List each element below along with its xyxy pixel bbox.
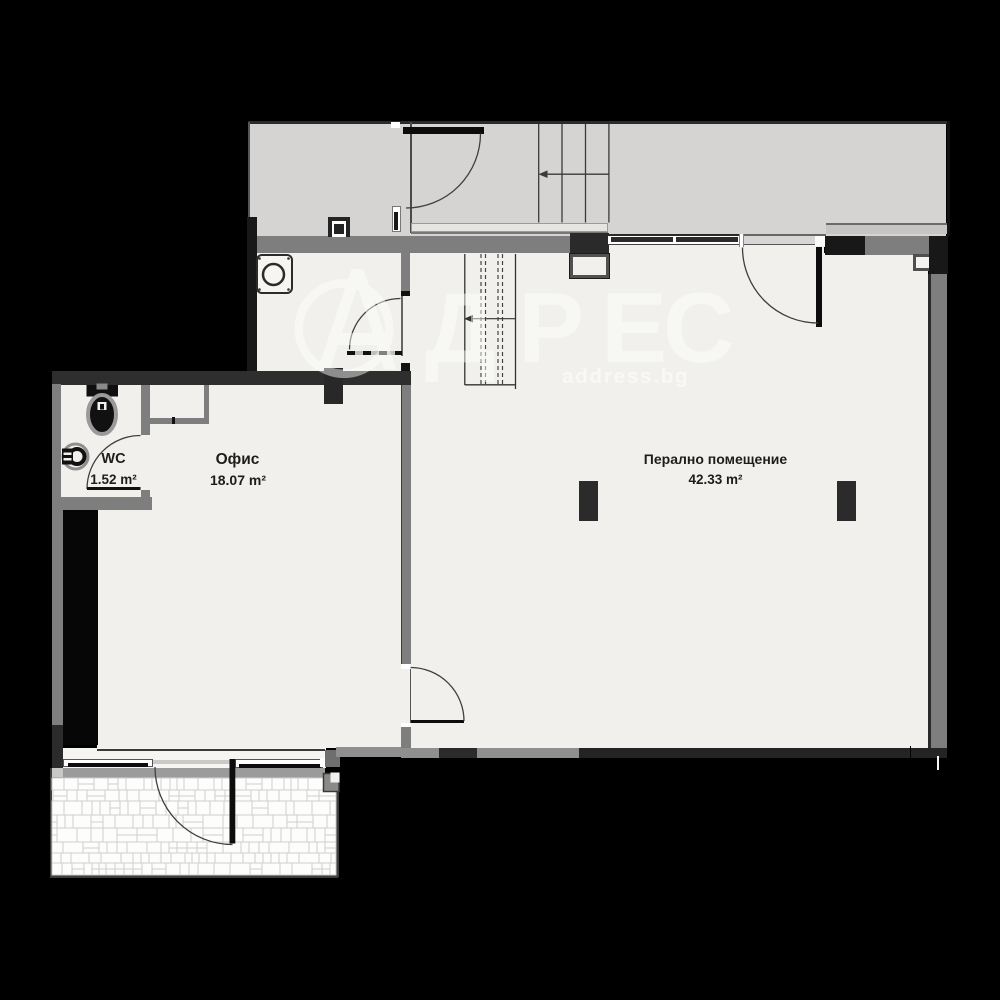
- svg-text:Д: Д: [425, 272, 496, 383]
- svg-text:address.bg: address.bg: [562, 365, 689, 388]
